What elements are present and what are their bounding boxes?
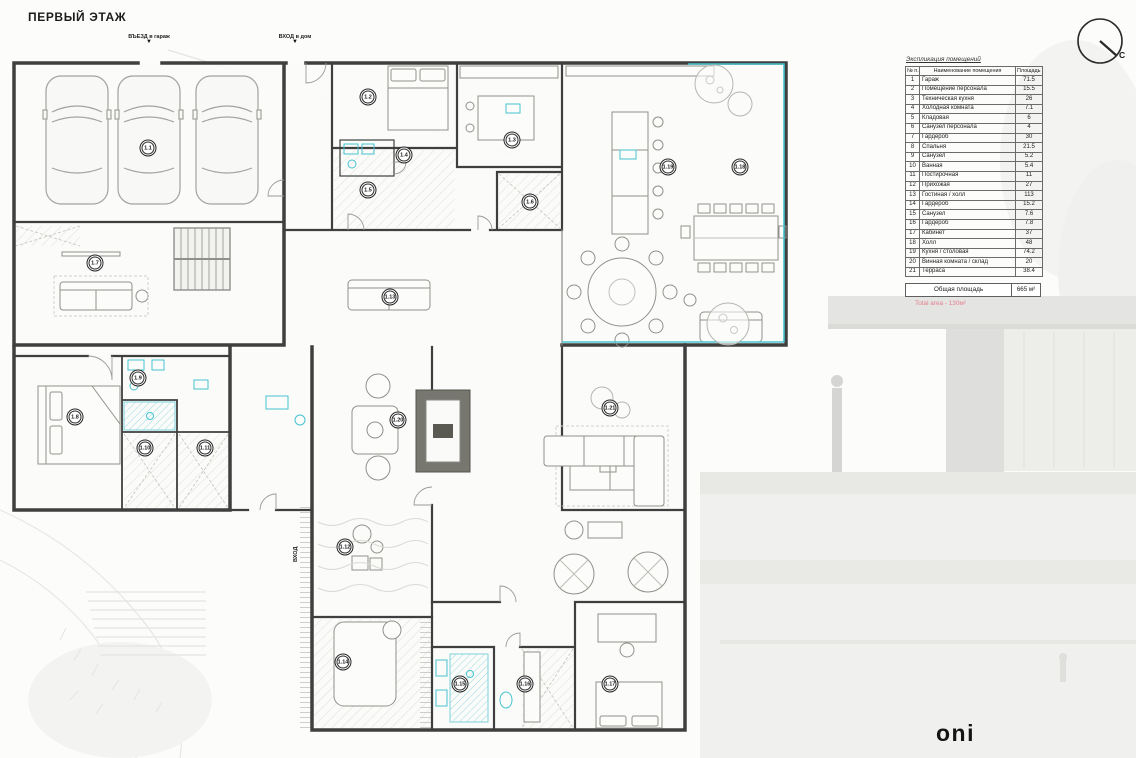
legend-cell-name: Кабинет	[920, 229, 1016, 239]
legend-cell-num: 8	[906, 143, 920, 153]
legend-cell-num: 12	[906, 181, 920, 191]
legend-cell-name: Холодная комната	[920, 104, 1016, 114]
legend-cell-num: 7	[906, 133, 920, 143]
legend-cell-area: 21.5	[1016, 143, 1043, 153]
legend-cell-num: 2	[906, 85, 920, 95]
cabinet-icon	[524, 652, 540, 722]
legend-cell-area: 7.1	[1016, 104, 1043, 114]
legend-cell-area: 15.5	[1016, 85, 1043, 95]
legend-cell-num: 13	[906, 191, 920, 201]
legend-table: № п.п Наименование помещения Площадь м² …	[905, 66, 1043, 277]
legend-cell-name: Спальня	[920, 143, 1016, 153]
legend-table-body: 1Гараж71.52Помещение персонала15.53Техни…	[906, 76, 1043, 277]
north-arrow-icon	[1066, 14, 1136, 76]
legend-row: 8Спальня21.5	[906, 143, 1043, 153]
legend-cell-area: 30	[1016, 133, 1043, 143]
legend-cell-name: Гостиная / холл	[920, 191, 1016, 201]
legend-row: 11Постирочная11	[906, 171, 1043, 181]
legend-total-note: Total area - 130м²	[915, 300, 1041, 307]
tree-icon	[728, 92, 752, 116]
legend: Экспликация помещений № п.п Наименование…	[905, 56, 1041, 307]
legend-cell-num: 9	[906, 152, 920, 162]
entrance-street-label: ВХОД	[293, 547, 299, 562]
legend-row: 6Санузел персонала4	[906, 123, 1043, 133]
legend-total-label: Общая площадь	[906, 284, 1012, 296]
legend-cell-name: Санузел	[920, 210, 1016, 220]
legend-cell-area: 11	[1016, 171, 1043, 181]
legend-total-value: 665 м²	[1012, 284, 1040, 296]
legend-cell-area: 4	[1016, 123, 1043, 133]
legend-row: 20Винная комната / склад20	[906, 258, 1043, 268]
legend-row: 13Гостиная / холл113	[906, 191, 1043, 201]
legend-cell-area: 27	[1016, 181, 1043, 191]
legend-cell-num: 19	[906, 248, 920, 258]
legend-cell-area: 20	[1016, 258, 1043, 268]
legend-row: 7Гардероб30	[906, 133, 1043, 143]
legend-cell-num: 18	[906, 239, 920, 249]
legend-row: 19Кухня / столовая74.2	[906, 248, 1043, 258]
legend-cell-name: Терраса	[920, 267, 1016, 277]
legend-col-name: Наименование помещения	[920, 67, 1016, 76]
legend-row: 2Помещение персонала15.5	[906, 85, 1043, 95]
legend-cell-area: 5.4	[1016, 162, 1043, 172]
legend-cell-name: Санузел	[920, 152, 1016, 162]
plant-icon	[614, 402, 630, 418]
legend-total: Общая площадь 665 м²	[905, 283, 1041, 297]
legend-cell-name: Ванная	[920, 162, 1016, 172]
legend-row: 4Холодная комната7.1	[906, 104, 1043, 114]
entrance-house-label: ВХОД в дом ▼	[259, 34, 331, 46]
legend-cell-area: 5.2	[1016, 152, 1043, 162]
legend-row: 3Техническая кухня26	[906, 95, 1043, 105]
legend-cell-name: Винная комната / склад	[920, 258, 1016, 268]
legend-cell-area: 37	[1016, 229, 1043, 239]
legend-row: 5Кладовая6	[906, 114, 1043, 124]
legend-cell-area: 15.2	[1016, 200, 1043, 210]
legend-cell-name: Постирочная	[920, 171, 1016, 181]
legend-cell-num: 11	[906, 171, 920, 181]
legend-cell-name: Гардероб	[920, 219, 1016, 229]
legend-row: 18Холл48	[906, 239, 1043, 249]
legend-cell-name: Прихожая	[920, 181, 1016, 191]
tree-icon	[707, 303, 749, 345]
legend-cell-name: Санузел персонала	[920, 123, 1016, 133]
car-icons	[43, 76, 261, 204]
legend-col-area: Площадь м²	[1016, 67, 1043, 76]
fireplace-icon	[416, 390, 470, 472]
legend-cell-num: 4	[906, 104, 920, 114]
legend-row: 12Прихожая27	[906, 181, 1043, 191]
legend-cell-num: 10	[906, 162, 920, 172]
legend-col-num: № п.п	[906, 67, 920, 76]
legend-row: 15Санузел7.6	[906, 210, 1043, 220]
legend-cell-num: 16	[906, 219, 920, 229]
legend-cell-area: 71.5	[1016, 76, 1043, 86]
legend-cell-name: Гардероб	[920, 133, 1016, 143]
entrance-garage-label: ВЪЕЗД в гараж ▼	[113, 34, 185, 46]
tree-icon	[695, 65, 733, 103]
legend-cell-num: 6	[906, 123, 920, 133]
legend-row: 1Гараж71.5	[906, 76, 1043, 86]
legend-cell-num: 5	[906, 114, 920, 124]
legend-cell-area: 6	[1016, 114, 1043, 124]
compass: С	[1066, 14, 1136, 76]
legend-cell-name: Кладовая	[920, 114, 1016, 124]
legend-cell-name: Гараж	[920, 76, 1016, 86]
legend-cell-name: Техническая кухня	[920, 95, 1016, 105]
legend-row: 17Кабинет37	[906, 229, 1043, 239]
legend-cell-num: 3	[906, 95, 920, 105]
compass-north-label: С	[1119, 50, 1125, 60]
legend-cell-num: 17	[906, 229, 920, 239]
legend-cell-area: 74.2	[1016, 248, 1043, 258]
plant-icon	[591, 387, 613, 409]
legend-cell-area: 48	[1016, 239, 1043, 249]
legend-cell-area: 113	[1016, 191, 1043, 201]
legend-row: 16Гардероб7.8	[906, 219, 1043, 229]
legend-cell-name: Кухня / столовая	[920, 248, 1016, 258]
bed-icon	[388, 66, 448, 130]
legend-row: 21Терраса38.4	[906, 267, 1043, 277]
legend-cell-area: 26	[1016, 95, 1043, 105]
legend-cell-num: 21	[906, 267, 920, 277]
legend-cell-name: Гардероб	[920, 200, 1016, 210]
brand-logo: oni	[936, 720, 975, 747]
legend-row: 10Ванная5.4	[906, 162, 1043, 172]
legend-cell-num: 1	[906, 76, 920, 86]
bed-icon	[38, 386, 120, 464]
legend-row: 14Гардероб15.2	[906, 200, 1043, 210]
legend-cell-area: 7.8	[1016, 219, 1043, 229]
page-title: ПЕРВЫЙ ЭТАЖ	[28, 10, 126, 24]
stairs-icon	[174, 228, 230, 290]
legend-cell-name: Помещение персонала	[920, 85, 1016, 95]
legend-cell-num: 14	[906, 200, 920, 210]
down-arrow-icon: ▼	[113, 39, 185, 46]
car-icon	[193, 76, 261, 204]
legend-cell-area: 38.4	[1016, 267, 1043, 277]
legend-caption: Экспликация помещений	[906, 56, 1041, 63]
legend-cell-name: Холл	[920, 239, 1016, 249]
down-arrow-icon: ▼	[259, 39, 331, 46]
sofa-icon	[348, 280, 430, 310]
legend-cell-num: 20	[906, 258, 920, 268]
car-icon	[43, 76, 111, 204]
legend-row: 9Санузел5.2	[906, 152, 1043, 162]
car-icon	[115, 76, 183, 204]
legend-cell-num: 15	[906, 210, 920, 220]
wardrobe-table-icon	[334, 621, 401, 706]
legend-cell-area: 7.6	[1016, 210, 1043, 220]
